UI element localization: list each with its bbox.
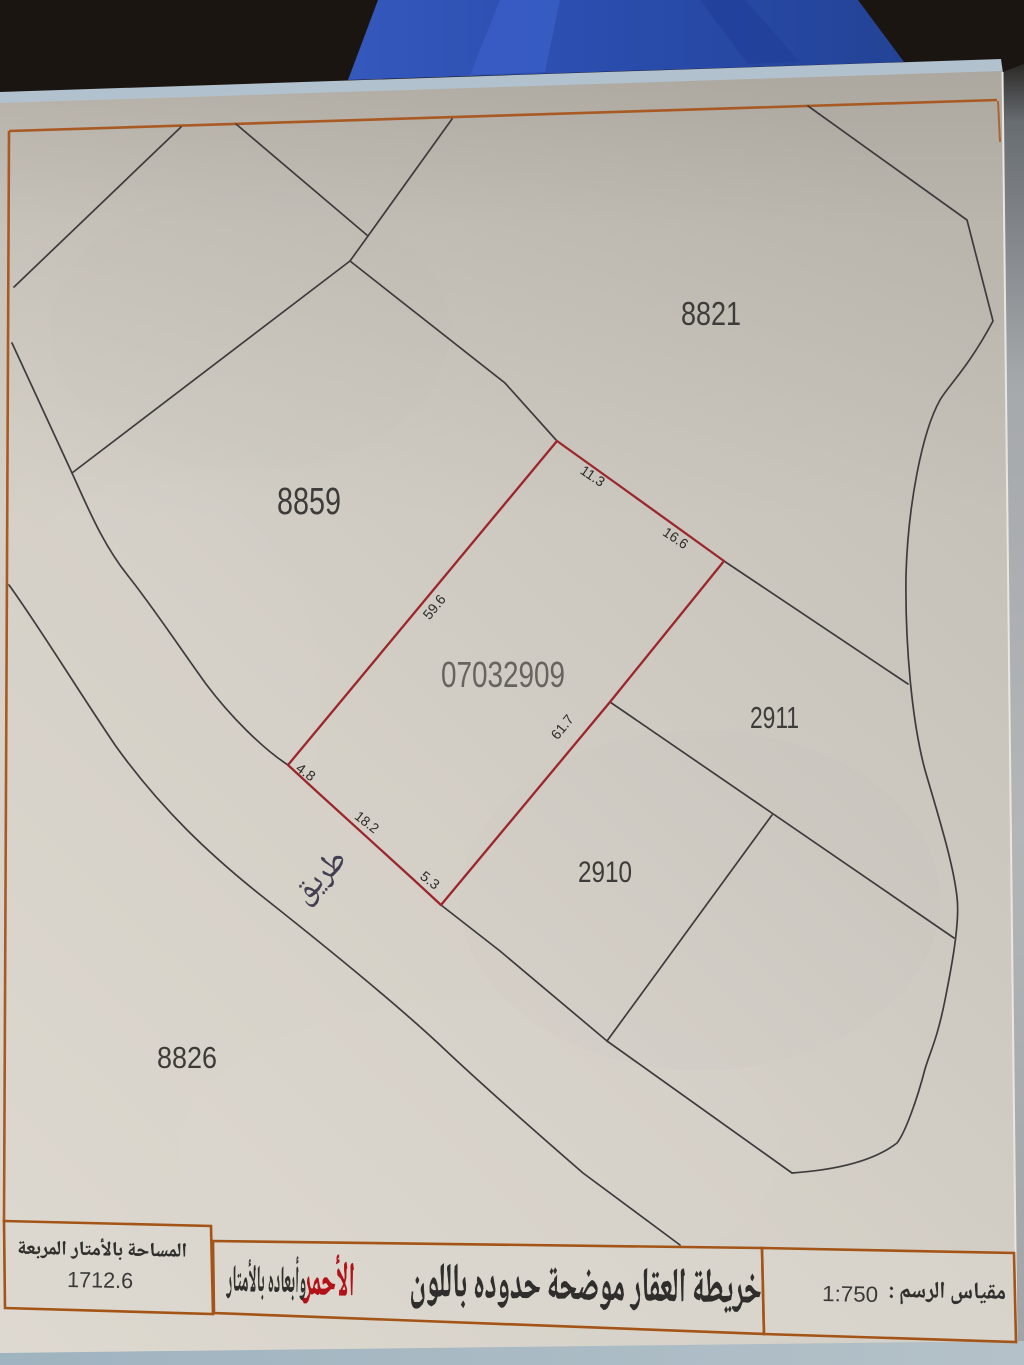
svg-text:1712.6: 1712.6 <box>67 1267 133 1293</box>
svg-text:1:750: 1:750 <box>822 1281 878 1307</box>
svg-text:07032909: 07032909 <box>441 654 565 695</box>
svg-text:8859: 8859 <box>277 481 341 523</box>
svg-text:2910: 2910 <box>578 856 632 889</box>
svg-text:2911: 2911 <box>750 700 799 735</box>
svg-text:8821: 8821 <box>681 295 741 332</box>
svg-text:8826: 8826 <box>157 1040 217 1075</box>
